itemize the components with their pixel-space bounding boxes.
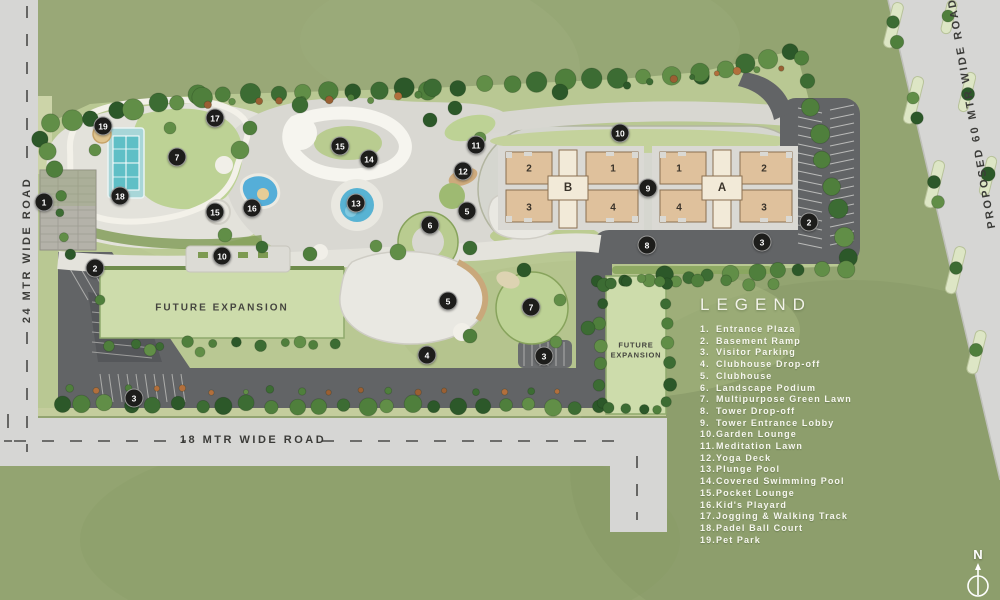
map-marker-4: 4 [418, 346, 437, 365]
legend-item-number: 10. [700, 429, 716, 441]
legend-item-label: Basement Ramp [716, 336, 801, 348]
legend-item-number: 15. [700, 488, 716, 500]
legend-item: 13.Plunge Pool [700, 464, 852, 476]
north-arrow-icon [958, 561, 998, 600]
legend-item-label: Multipurpose Green Lawn [716, 394, 852, 406]
legend-item-label: Pocket Lounge [716, 488, 795, 500]
road-label-24mtr: 24 MTR WIDE ROAD [21, 177, 33, 323]
tower-unit-label: 1 [676, 164, 682, 175]
tower-unit-label: 2 [761, 164, 767, 175]
legend-item-label: Visitor Parking [716, 347, 796, 359]
legend-item-label: Meditation Lawn [716, 441, 803, 453]
legend-item-number: 5. [700, 371, 716, 383]
legend-item-number: 16. [700, 500, 716, 512]
legend-item-label: Clubhouse [716, 371, 772, 383]
map-marker-5: 5 [439, 292, 458, 311]
map-marker-14: 14 [360, 150, 379, 169]
legend-item-label: Plunge Pool [716, 464, 780, 476]
legend-item-label: Yoga Deck [716, 453, 771, 465]
road-18mtr-leg [610, 418, 667, 532]
legend-item-number: 3. [700, 347, 716, 359]
map-marker-16: 16 [243, 199, 262, 218]
legend-item-label: Clubhouse Drop-off [716, 359, 820, 371]
legend-list: 1.Entrance Plaza2.Basement Ramp3.Visitor… [700, 324, 852, 546]
legend-item-number: 2. [700, 336, 716, 348]
map-marker-5: 5 [458, 202, 477, 221]
legend-item-number: 1. [700, 324, 716, 336]
map-marker-2: 2 [86, 259, 105, 278]
map-marker-3: 3 [125, 389, 144, 408]
road-18mtr [0, 418, 667, 466]
tower-unit-label: 1 [610, 164, 616, 175]
tower-unit-label: 4 [610, 203, 616, 214]
legend-item-number: 14. [700, 476, 716, 488]
legend-item-number: 12. [700, 453, 716, 465]
legend-item-label: Tower Entrance Lobby [716, 418, 834, 430]
future-expansion-east-line1: FUTURE [601, 341, 671, 351]
legend-item-number: 6. [700, 383, 716, 395]
map-marker-13: 13 [347, 194, 366, 213]
legend-item-number: 8. [700, 406, 716, 418]
tower-unit-label: 3 [761, 203, 767, 214]
map-marker-10: 10 [611, 124, 630, 143]
future-expansion-west-label: FUTURE EXPANSION [155, 303, 289, 314]
legend-item: 5.Clubhouse [700, 371, 852, 383]
legend-title: LEGEND [700, 295, 852, 315]
pavilion [215, 156, 233, 174]
tower-core-label-B: B [564, 182, 572, 194]
tower-core-label-A: A [718, 182, 726, 194]
legend-item: 7.Multipurpose Green Lawn [700, 394, 852, 406]
legend-panel: LEGEND 1.Entrance Plaza2.Basement Ramp3.… [700, 295, 852, 546]
legend-item-number: 18. [700, 523, 716, 535]
legend-item-label: Padel Ball Court [716, 523, 803, 535]
tower-unit-label: 3 [526, 203, 532, 214]
legend-item-label: Kid's Playard [716, 500, 787, 512]
legend-item-label: Entrance Plaza [716, 324, 795, 336]
map-marker-2: 2 [800, 213, 819, 232]
map-marker-15: 15 [206, 203, 225, 222]
north-indicator: N [958, 548, 998, 600]
legend-item: 16.Kid's Playard [700, 500, 852, 512]
north-label: N [958, 548, 998, 561]
map-marker-19: 19 [94, 117, 113, 136]
legend-item-number: 17. [700, 511, 716, 523]
legend-item: 17.Jogging & Walking Track [700, 511, 852, 523]
map-marker-8: 8 [638, 236, 657, 255]
legend-item-label: Tower Drop-off [716, 406, 795, 418]
kids-pool-island [257, 188, 269, 200]
legend-item: 18.Padel Ball Court [700, 523, 852, 535]
master-plan-canvas: 24 MTR WIDE ROAD 18 MTR WIDE ROAD PROPOS… [0, 0, 1000, 600]
legend-item-label: Garden Lounge [716, 429, 797, 441]
map-marker-7: 7 [168, 148, 187, 167]
tower-unit-label: 2 [526, 164, 532, 175]
legend-item-number: 9. [700, 418, 716, 430]
map-marker-7: 7 [522, 298, 541, 317]
map-marker-12: 12 [454, 162, 473, 181]
legend-item: 12.Yoga Deck [700, 453, 852, 465]
legend-item: 10.Garden Lounge [700, 429, 852, 441]
garden-lounge [186, 246, 290, 272]
map-marker-10: 10 [213, 247, 232, 266]
map-marker-9: 9 [639, 179, 658, 198]
legend-item: 3.Visitor Parking [700, 347, 852, 359]
map-marker-6: 6 [421, 216, 440, 235]
map-marker-1: 1 [35, 193, 54, 212]
future-expansion-east-line2: EXPANSION [601, 350, 671, 360]
map-marker-18: 18 [111, 187, 130, 206]
map-marker-17: 17 [206, 109, 225, 128]
legend-item: 14.Covered Swimming Pool [700, 476, 852, 488]
map-marker-3: 3 [753, 233, 772, 252]
map-marker-11: 11 [467, 136, 486, 155]
legend-item: 19.Pet Park [700, 535, 852, 547]
legend-item: 11.Meditation Lawn [700, 441, 852, 453]
legend-item: 9.Tower Entrance Lobby [700, 418, 852, 430]
legend-item-label: Covered Swimming Pool [716, 476, 845, 488]
legend-item-label: Pet Park [716, 535, 761, 547]
map-marker-3: 3 [535, 347, 554, 366]
future-expansion-east-label: FUTURE EXPANSION [601, 341, 671, 360]
legend-item: 4.Clubhouse Drop-off [700, 359, 852, 371]
legend-item: 1.Entrance Plaza [700, 324, 852, 336]
legend-item: 8.Tower Drop-off [700, 406, 852, 418]
tower-unit-label: 4 [676, 203, 682, 214]
legend-item-number: 19. [700, 535, 716, 547]
covered-pool-pavilion [283, 116, 317, 150]
legend-item-number: 4. [700, 359, 716, 371]
map-marker-15: 15 [331, 137, 350, 156]
road-label-18mtr: 18 MTR WIDE ROAD [180, 434, 326, 446]
legend-item-number: 13. [700, 464, 716, 476]
legend-item: 15.Pocket Lounge [700, 488, 852, 500]
legend-item-label: Landscape Podium [716, 383, 816, 395]
legend-item-number: 11. [700, 441, 716, 453]
legend-item-number: 7. [700, 394, 716, 406]
legend-item: 2.Basement Ramp [700, 336, 852, 348]
legend-item-label: Jogging & Walking Track [716, 511, 848, 523]
legend-item: 6.Landscape Podium [700, 383, 852, 395]
